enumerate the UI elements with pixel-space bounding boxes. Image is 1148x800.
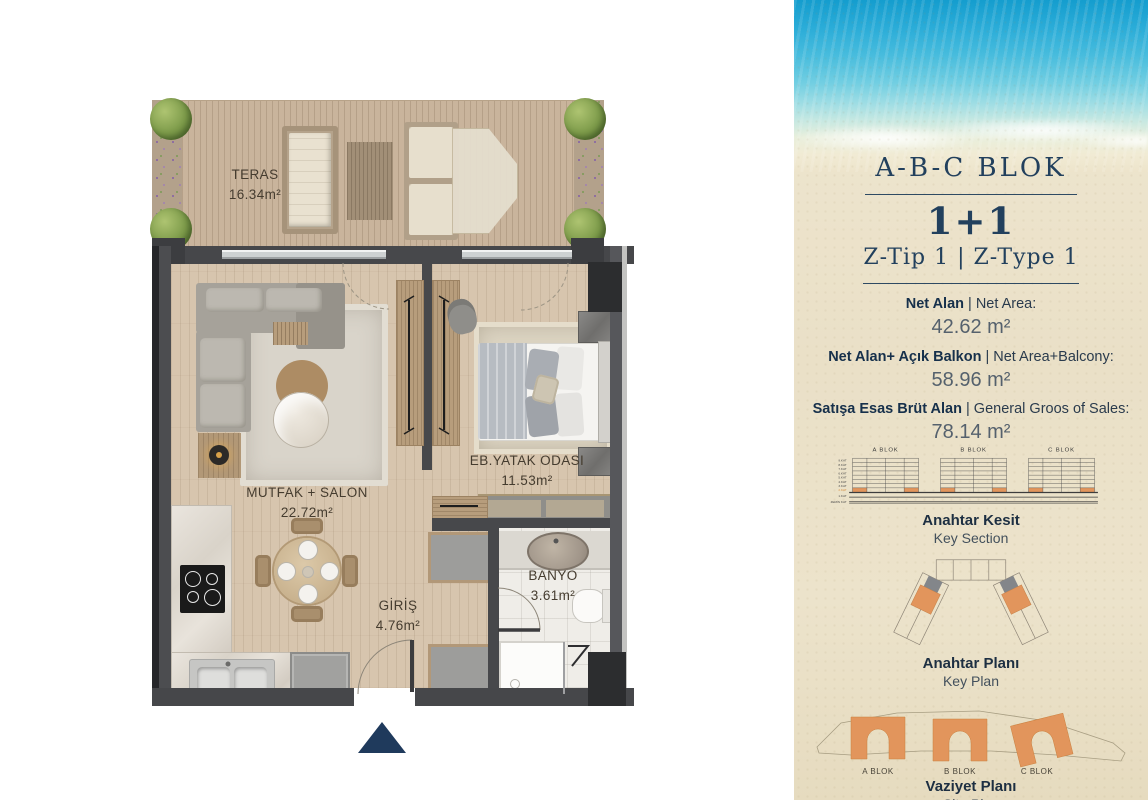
site-plan-title-tr: Vaziyet Planı — [794, 778, 1148, 795]
divider-line — [865, 194, 1077, 195]
room-label-banyo: BANYO3.61m² — [497, 566, 609, 607]
net-balcony-area-row: Net Alan+ Açık Balkon | Net Area+Balcony… — [794, 349, 1148, 392]
wall — [488, 528, 499, 706]
gross-area-row: Satışa Esas Brüt Alan | General Groos of… — [794, 401, 1148, 444]
dining-chair — [342, 555, 358, 587]
key-section-diagram: A BLOK B BLOK C BLOK 9.KAT 8.KAT 7.KAT 6… — [806, 443, 1136, 509]
svg-text:C BLOK: C BLOK — [1048, 447, 1075, 453]
key-section-title-en: Key Section — [794, 530, 1148, 546]
wall — [610, 246, 627, 706]
net-area-row: Net Alan | Net Area: 42.62 m² — [794, 296, 1148, 339]
area-label-tr: Net Alan — [906, 296, 964, 312]
svg-text:B BLOK: B BLOK — [960, 447, 986, 453]
area-value: 42.62 m² — [794, 316, 1148, 339]
area-value: 78.14 m² — [794, 421, 1148, 444]
site-plan-diagram: A BLOK B BLOK C BLOK — [810, 693, 1132, 781]
wall — [152, 688, 354, 706]
wall — [152, 246, 171, 706]
stove — [180, 565, 225, 613]
unit-type: 1+1 — [794, 199, 1148, 243]
svg-text:B BLOK: B BLOK — [944, 767, 976, 776]
dining-chair — [291, 606, 323, 622]
dining-chair — [255, 555, 271, 587]
info-panel: A-B-C BLOK 1+1 Z-Tip 1 | Z-Type 1 Net Al… — [794, 0, 1148, 800]
key-plan-title-en: Key Plan — [794, 673, 1148, 689]
key-plan-diagram — [881, 553, 1061, 653]
wardrobe — [396, 280, 424, 446]
sofa-cushion — [266, 288, 322, 312]
bush-icon — [564, 98, 606, 140]
terrace-rug — [347, 142, 393, 220]
bedroom-cabinet — [478, 494, 610, 521]
shaft-column — [588, 262, 622, 312]
area-label-en: | General Groos of Sales: — [966, 401, 1129, 417]
svg-text:ZEMİN KAT: ZEMİN KAT — [831, 499, 847, 504]
beach-photo — [794, 0, 1148, 172]
area-label-tr: Satışa Esas Brüt Alan — [813, 401, 962, 417]
block-title: A-B-C BLOK — [794, 153, 1148, 183]
svg-text:C BLOK: C BLOK — [1021, 767, 1054, 776]
hall-cabinet — [428, 532, 494, 583]
wall — [571, 238, 604, 264]
sofa-cushion — [200, 384, 246, 428]
nightstand — [578, 311, 612, 343]
site-plan-title-en: Site Plan — [794, 796, 1148, 800]
floor-plan: TERAS16.34m² MUTFAK + SALON22.72m² EB.YA… — [0, 0, 790, 800]
area-value: 58.96 m² — [794, 369, 1148, 392]
sofa-cushion — [200, 338, 246, 382]
dining-table — [274, 538, 340, 604]
svg-text:A BLOK: A BLOK — [862, 767, 894, 776]
shaft-column — [588, 652, 626, 706]
svg-text:A BLOK: A BLOK — [872, 447, 898, 453]
pillow — [555, 346, 585, 391]
area-label-en: | Net Area+Balcony: — [985, 349, 1113, 365]
svg-text:2.KAT: 2.KAT — [838, 488, 846, 492]
sliding-door — [462, 250, 572, 259]
sofa-cushion — [206, 288, 264, 312]
divider-line — [863, 283, 1079, 284]
room-label-giris: GİRİŞ4.76m² — [340, 596, 456, 637]
entrance-arrow-icon — [358, 722, 406, 753]
area-label-en: | Net Area: — [968, 296, 1036, 312]
room-label-bedroom: EB.YATAK ODASI11.53m² — [447, 451, 607, 492]
pillow — [555, 392, 585, 437]
coffee-table-marble — [273, 392, 329, 448]
terrace-daybed — [404, 122, 458, 240]
sliding-door — [222, 250, 386, 259]
svg-text:1.KAT: 1.KAT — [838, 494, 846, 498]
area-label-tr: Net Alan+ Açık Balkon — [828, 349, 981, 365]
key-plan-title-tr: Anahtar Planı — [794, 655, 1148, 672]
room-label-teras: TERAS16.34m² — [185, 165, 325, 206]
ottoman — [273, 322, 308, 345]
floor-lamp-icon — [209, 445, 229, 465]
wall — [386, 246, 462, 264]
bed-blanket — [478, 343, 527, 439]
bush-icon — [150, 98, 192, 140]
type-label: Z-Tip 1 | Z-Type 1 — [794, 245, 1148, 270]
key-section-title-tr: Anahtar Kesit — [794, 512, 1148, 529]
room-label-salon: MUTFAK + SALON22.72m² — [227, 483, 387, 524]
